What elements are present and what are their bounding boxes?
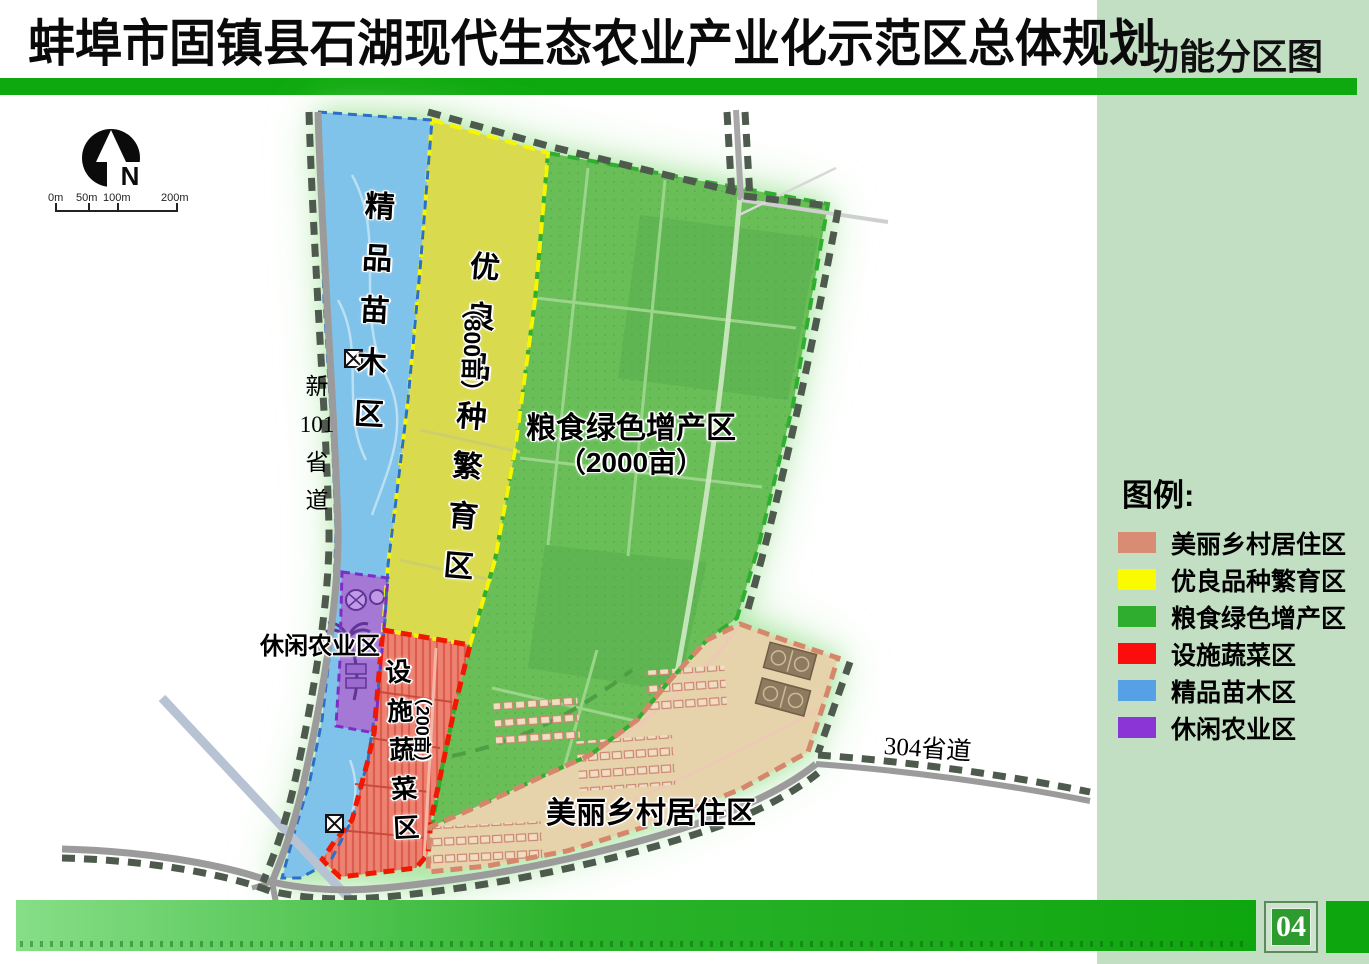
legend-swatch: [1118, 680, 1156, 701]
legend-item-grain: 粮食绿色增产区: [1118, 598, 1346, 635]
leisure-structure-icon: [346, 678, 366, 688]
page-number: 04: [1271, 908, 1311, 946]
label-vegetable-area: （200亩）: [410, 688, 437, 772]
planning-poster: 蚌埠市固镇县石湖现代生态农业产业化示范区总体规划 功能分区图: [0, 0, 1369, 964]
legend-label: 休闲农业区: [1171, 710, 1296, 746]
label-leisure-zone: 休闲农业区: [260, 626, 380, 661]
legend-label: 设施蔬菜区: [1171, 636, 1296, 672]
legend-item-vegetable: 设施蔬菜区: [1118, 635, 1346, 672]
legend-item-nursery: 精品苗木区: [1118, 672, 1346, 709]
legend-item-breeding: 优良品种繁育区: [1118, 561, 1346, 598]
label-road-304: 304省道: [883, 726, 973, 768]
label-road-101: 新 101 省 道: [296, 368, 338, 520]
footer-accent-bar: [16, 900, 1256, 951]
legend-label: 优良品种繁育区: [1171, 562, 1346, 598]
legend-swatch: [1118, 532, 1156, 553]
legend-title: 图例:: [1122, 470, 1194, 515]
legend-swatch: [1118, 606, 1156, 627]
label-breeding-area: （800亩）: [456, 295, 492, 403]
legend-item-leisure: 休闲农业区: [1118, 709, 1346, 746]
legend-label: 美丽乡村居住区: [1171, 525, 1346, 561]
legend: 美丽乡村居住区 优良品种繁育区 粮食绿色增产区 设施蔬菜区 精品苗木区 休闲农业…: [1118, 524, 1346, 746]
label-grain-zone: 粮食绿色增产区 （2000亩）: [500, 412, 762, 480]
scale-tick: 200m: [161, 192, 189, 204]
grain-zone-name: 粮食绿色增产区: [500, 412, 762, 446]
label-village-zone: 美丽乡村居住区: [546, 788, 756, 832]
legend-swatch: [1118, 717, 1156, 738]
legend-swatch: [1118, 643, 1156, 664]
legend-item-village: 美丽乡村居住区: [1118, 524, 1346, 561]
scale-tick: 50m: [76, 192, 97, 204]
north-compass-icon: N: [78, 124, 148, 194]
scale-bar: 0m 50m 100m 200m: [40, 192, 200, 218]
grain-zone-area: （2000亩）: [500, 446, 762, 480]
legend-swatch: [1118, 569, 1156, 590]
legend-label: 精品苗木区: [1171, 673, 1296, 709]
legend-label: 粮食绿色增产区: [1171, 599, 1346, 635]
svg-text:N: N: [121, 161, 140, 191]
footer-accent-right: [1326, 901, 1369, 953]
leisure-structure-icon: [346, 664, 366, 674]
page-number-box: 04: [1264, 901, 1318, 953]
